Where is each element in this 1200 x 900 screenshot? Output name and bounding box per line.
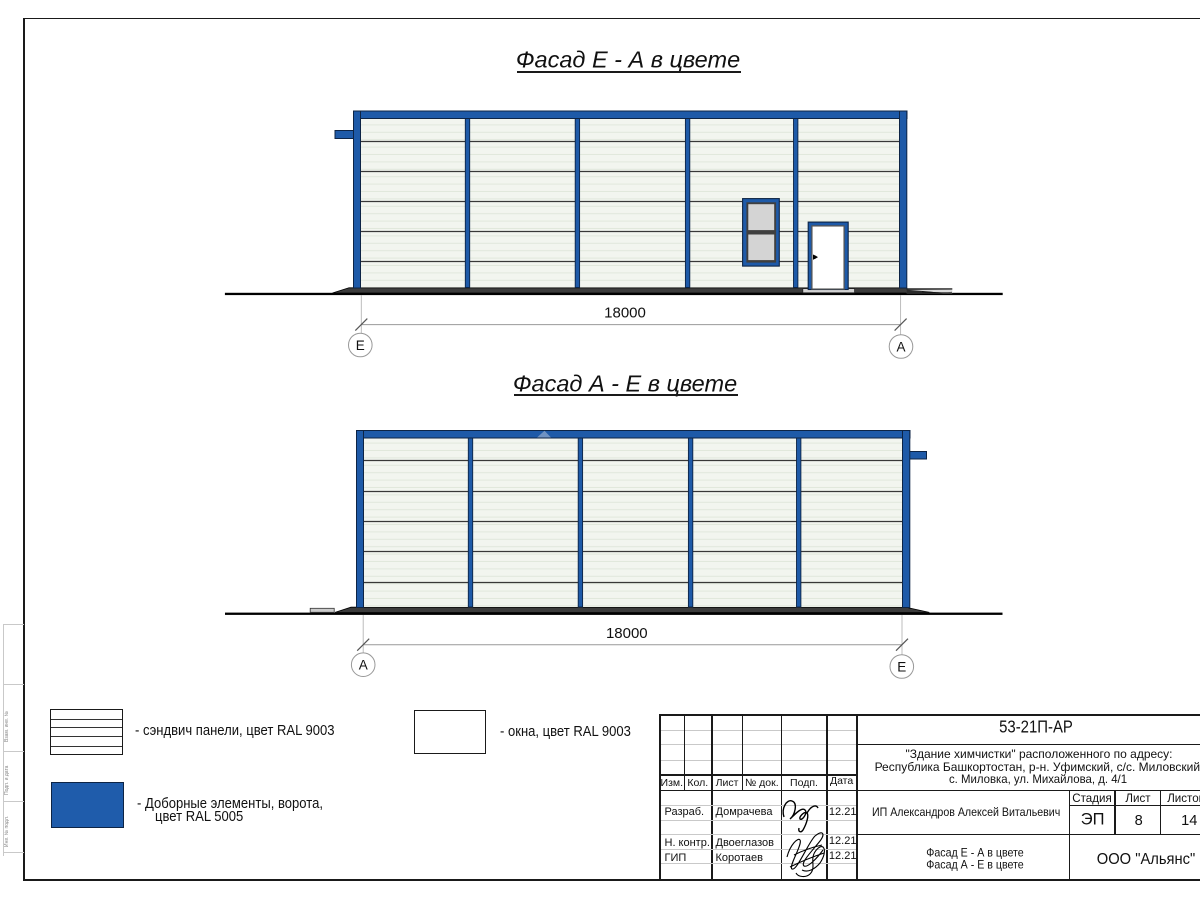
- svg-text:Е: Е: [356, 338, 365, 353]
- svg-text:А: А: [359, 658, 368, 673]
- svg-text:18000: 18000: [606, 625, 648, 642]
- svg-text:Е: Е: [897, 660, 906, 675]
- svg-text:А: А: [896, 340, 905, 355]
- svg-text:18000: 18000: [604, 305, 646, 322]
